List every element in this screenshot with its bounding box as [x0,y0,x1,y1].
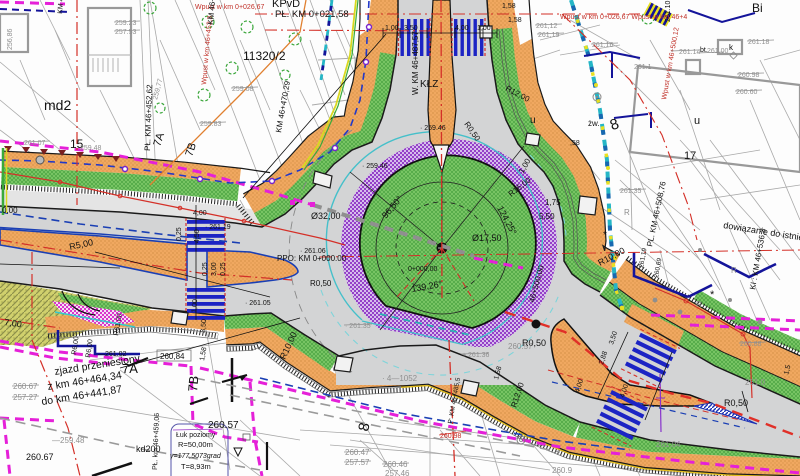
svg-text:261.1: 261.1 [634,64,652,71]
svg-text:0,25: 0,25 [176,227,183,241]
svg-text:0,00: 0,00 [2,206,18,215]
svg-text:· 259.46: · 259.46 [420,125,446,132]
svg-text:1,00: 1,00 [191,299,199,313]
svg-text:Wpust w km 0+026,67 Wpust w: Wpust w km 0+026,67 Wpust w km 46+4 [560,14,687,21]
svg-text:*: * [603,230,607,241]
svg-text:260.47: 260.47 [345,448,370,457]
svg-text:u: u [694,115,700,127]
svg-text:260.67: 260.67 [26,452,54,462]
svg-text:260.57: 260.57 [208,420,239,431]
svg-text:Wpust w km 0+026,67: Wpust w km 0+026,67 [195,4,265,11]
svg-text:1,00: 1,00 [385,25,399,32]
svg-text:Ø32,00: Ø32,00 [311,211,341,221]
svg-text:261.0: 261.0 [745,378,766,387]
svg-text:W. KM 46+487,57: W. KM 46+487,57 [411,31,420,95]
svg-text:R0,50: R0,50 [724,398,748,408]
svg-text:260.67: 260.67 [13,382,38,391]
svg-text:7B: 7B [185,375,201,392]
svg-text:1,58: 1,58 [508,17,522,24]
svg-text:T=8,93m: T=8,93m [181,462,211,471]
svg-text:17: 17 [684,150,696,162]
svg-text:· 261.19: · 261.19 [205,224,231,231]
svg-text:0,25: 0,25 [220,262,227,276]
svg-text:5,50: 5,50 [539,212,555,221]
svg-text:11320/2: 11320/2 [243,49,286,63]
svg-text:R: R [624,208,630,217]
svg-text:R=50,00m: R=50,00m [178,440,213,449]
svg-text:R0,50: R0,50 [310,279,332,288]
svg-text:PPO: KM 0+000.00: PPO: KM 0+000.00 [277,254,347,263]
svg-text:R: R [696,300,702,309]
svg-text:257.57: 257.57 [345,458,370,467]
svg-text:KŁZ: KŁZ [420,79,438,90]
svg-text:Bi: Bi [752,1,763,15]
svg-text:4,00: 4,00 [455,25,469,32]
svg-text:1,00: 1,00 [477,25,491,32]
svg-text:3,50: 3,50 [200,319,208,333]
svg-text:—259.48: —259.48 [52,436,85,445]
svg-text:· 261.05: · 261.05 [245,300,271,307]
svg-text:7A: 7A [122,361,138,376]
svg-text:4,50: 4,50 [194,229,201,243]
svg-text:· 259.46: · 259.46 [362,163,388,170]
svg-text:md2: md2 [44,97,71,113]
svg-text:Łuk poziomy: Łuk poziomy [176,432,216,439]
svg-text:3,00: 3,00 [211,262,218,276]
svg-text:260.57: 260.57 [508,342,533,351]
svg-text:1,58: 1,58 [502,3,516,10]
svg-text:257.46: 257.46 [385,469,410,476]
svg-text:259.48: 259.48 [80,145,102,152]
svg-text:3,50: 3,50 [404,25,418,32]
svg-text:,58: ,58 [570,140,580,147]
svg-text:żw.: żw. [588,119,600,128]
svg-text:u: u [530,115,536,126]
svg-text:γ=177,5073grad: γ=177,5073grad [170,453,222,460]
svg-text:0+000,00: 0+000,00 [408,266,437,273]
svg-text:260.9: 260.9 [552,466,573,475]
svg-text:Ø17,50: Ø17,50 [472,233,502,243]
svg-text:PŁ. KM 0+021,58: PŁ. KM 0+021,58 [275,9,349,20]
svg-text:· 4—1052: · 4—1052 [382,374,418,383]
svg-text:257.27: 257.27 [13,393,38,402]
svg-text:kd200: kd200 [136,444,161,454]
svg-text:R: R [731,266,737,275]
svg-text:260,84: 260,84 [160,352,185,361]
svg-text:0,25: 0,25 [202,262,209,276]
svg-text:1,75: 1,75 [545,198,561,207]
svg-text:*: * [710,289,715,301]
svg-text:260.46: 260.46 [383,460,408,469]
svg-text:256,86: 256,86 [7,28,14,50]
svg-text:261.04: 261.04 [656,440,681,449]
svg-text:KPvD: KPvD [272,0,300,10]
svg-text:261.00: 261.00 [707,48,729,55]
svg-text:4,00: 4,00 [193,210,207,217]
